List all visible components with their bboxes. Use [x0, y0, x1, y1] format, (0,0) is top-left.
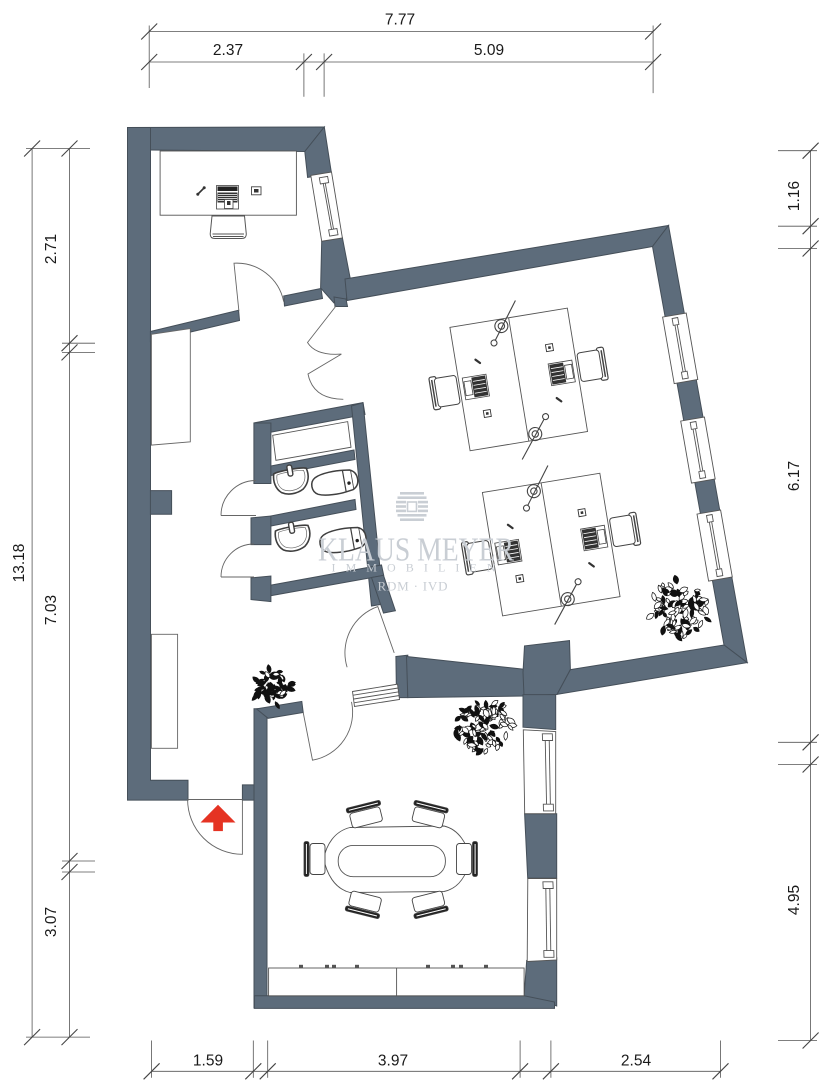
svg-text:7.03: 7.03	[43, 595, 60, 625]
svg-text:1.16: 1.16	[786, 181, 803, 211]
svg-text:5.09: 5.09	[474, 42, 504, 59]
svg-text:3.97: 3.97	[378, 1053, 408, 1070]
svg-text:IMMOBILIEN: IMMOBILIEN	[332, 561, 496, 575]
svg-text:1.59: 1.59	[193, 1053, 223, 1070]
svg-text:2.37: 2.37	[213, 42, 243, 59]
svg-text:2.71: 2.71	[43, 234, 60, 264]
svg-text:13.18: 13.18	[11, 544, 28, 583]
svg-text:6.17: 6.17	[786, 461, 803, 491]
svg-text:2.54: 2.54	[621, 1053, 652, 1070]
svg-text:7.77: 7.77	[385, 12, 415, 29]
svg-text:4.95: 4.95	[786, 885, 803, 915]
svg-text:3.07: 3.07	[43, 907, 60, 937]
svg-text:RDM · IVD: RDM · IVD	[378, 579, 448, 594]
